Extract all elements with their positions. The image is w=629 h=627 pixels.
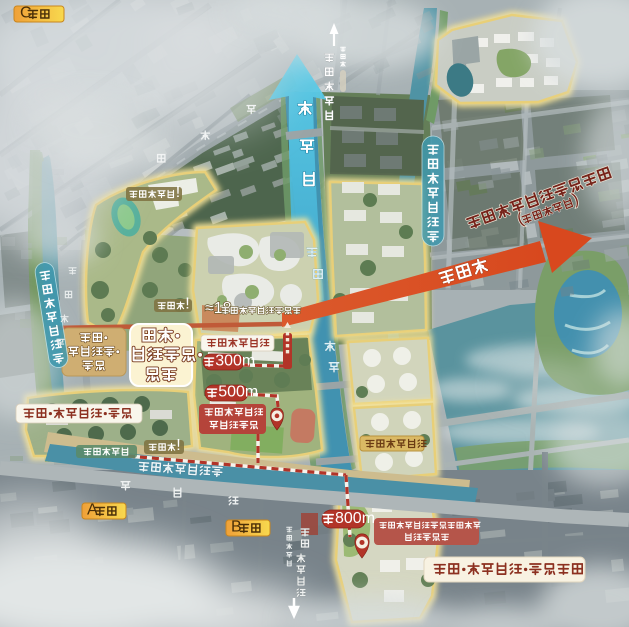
- svg-text:C: C: [20, 5, 32, 22]
- svg-text:!: !: [176, 184, 180, 201]
- svg-text:A: A: [87, 502, 98, 519]
- svg-text:500m: 500m: [218, 384, 258, 401]
- svg-text:!: !: [185, 295, 189, 312]
- svg-text:B: B: [231, 519, 242, 536]
- svg-text:300m: 300m: [215, 353, 255, 370]
- svg-text:!: !: [176, 437, 180, 454]
- svg-text:800m: 800m: [335, 510, 375, 527]
